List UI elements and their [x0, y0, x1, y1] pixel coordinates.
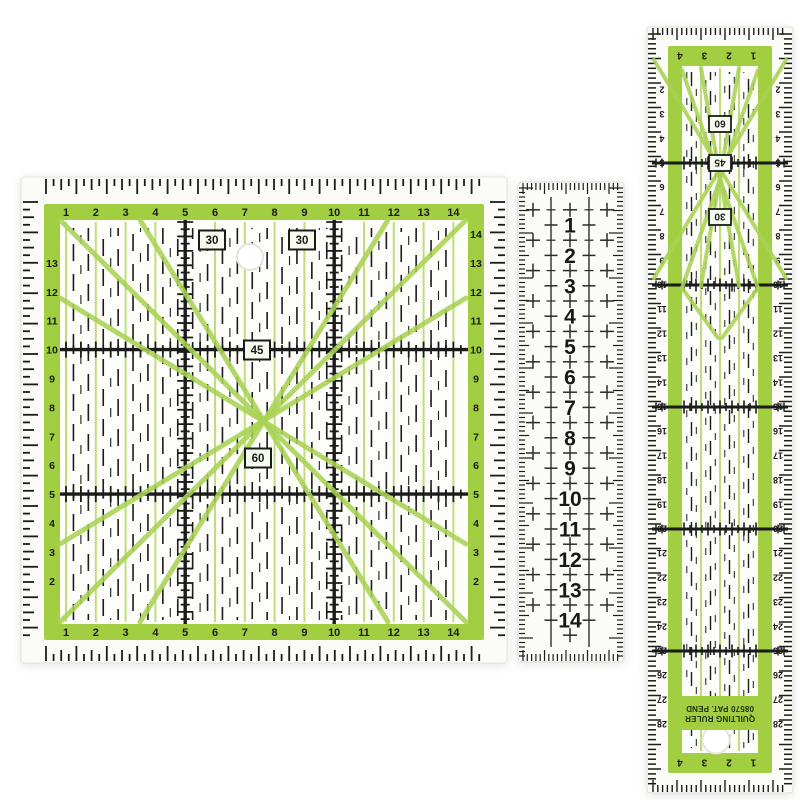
- scale-number: 1: [750, 50, 756, 61]
- scale-number: 10: [470, 345, 482, 357]
- scale-number: 3: [473, 547, 479, 559]
- angle-box-label: 45: [714, 157, 726, 168]
- scale-number: 4: [677, 50, 683, 61]
- scale-number: 13: [46, 258, 58, 270]
- scale-number: 22: [657, 573, 667, 583]
- scale-number: 12: [388, 207, 400, 219]
- scale-number: 2: [659, 85, 664, 95]
- scale-number: 4: [659, 133, 664, 143]
- scale-number: 7: [242, 207, 248, 219]
- scale-number: 4: [775, 133, 780, 143]
- scale-number: 3: [775, 109, 780, 119]
- scale-number: 7: [775, 206, 780, 216]
- scale-number: 1: [63, 627, 69, 639]
- scale-number: 13: [773, 353, 783, 363]
- ruler-label-line2: 08570 PAT. PEND: [686, 703, 754, 713]
- scale-number: 14: [447, 207, 460, 219]
- scale-number: 14: [773, 377, 783, 387]
- scale-number: 9: [473, 374, 479, 386]
- scale-number: 5: [473, 489, 479, 501]
- scale-number: 3: [659, 109, 664, 119]
- scale-number: 2: [775, 85, 780, 95]
- scale-number: 8: [272, 627, 278, 639]
- scale-number: 10: [46, 345, 58, 357]
- scale-number: 5: [49, 489, 55, 501]
- scale-number: 28: [773, 719, 783, 729]
- scale-number: 4: [564, 306, 576, 329]
- scale-number: 13: [558, 579, 581, 602]
- scale-number: 2: [93, 627, 99, 639]
- scale-number: 2: [93, 207, 99, 219]
- scale-number: 6: [49, 460, 55, 472]
- scale-number: 12: [773, 329, 783, 339]
- scale-number: 18: [773, 475, 783, 485]
- scale-number: 2: [564, 245, 576, 268]
- scale-number: 13: [417, 627, 429, 639]
- scale-number: 18: [657, 475, 667, 485]
- scale-number: 1: [63, 207, 69, 219]
- long-quilting-ruler: QUILTING RULER 08570 PAT. PEND 234567891…: [646, 26, 794, 794]
- scale-number: 14: [558, 610, 582, 633]
- scale-number: 7: [659, 206, 664, 216]
- ruler-label-line1: QUILTING RULER: [685, 713, 755, 723]
- scale-number: 12: [470, 287, 482, 299]
- scale-number: 9: [301, 627, 307, 639]
- scale-number: 16: [773, 426, 783, 436]
- scale-number: 6: [212, 207, 218, 219]
- scale-number: 26: [657, 670, 667, 680]
- scale-number: 7: [473, 431, 479, 443]
- scale-number: 9: [301, 207, 307, 219]
- scale-number: 2: [473, 576, 479, 588]
- scale-number: 11: [46, 316, 57, 328]
- scale-number: 3: [701, 50, 707, 61]
- scale-number: 3: [701, 757, 707, 768]
- scale-number: 4: [473, 518, 479, 530]
- narrow-straight-ruler: 1234567891011121314: [517, 181, 625, 663]
- scale-number: 27: [773, 695, 783, 705]
- scale-number: 11: [470, 316, 481, 328]
- scale-number: 2: [49, 576, 55, 588]
- scale-number: 16: [657, 426, 667, 436]
- scale-number: 8: [775, 231, 780, 241]
- scale-number: 9: [564, 458, 576, 481]
- scale-number: 7: [242, 627, 248, 639]
- scale-number: 11: [358, 627, 370, 639]
- scale-number: 11: [657, 304, 667, 314]
- scale-number: 3: [123, 207, 129, 219]
- straight-ruler-graphic: 1234567891011121314: [517, 181, 625, 663]
- angle-box-label: 60: [252, 453, 265, 465]
- scale-number: 19: [657, 499, 667, 509]
- hang-hole: [237, 244, 263, 270]
- scale-number: 14: [657, 377, 667, 387]
- scale-number: 8: [272, 207, 278, 219]
- scale-number: 14: [470, 229, 482, 241]
- scale-number: 1: [750, 757, 756, 768]
- scale-number: 19: [773, 499, 783, 509]
- scale-number: 11: [358, 207, 370, 219]
- scale-number: 26: [773, 670, 783, 680]
- scale-number: 6: [659, 182, 664, 192]
- scale-number: 11: [773, 304, 783, 314]
- scale-number: 17: [657, 451, 667, 461]
- scale-number: 24: [773, 621, 783, 631]
- scale-number: 8: [49, 402, 55, 414]
- scale-number: 7: [49, 431, 55, 443]
- scale-number: 4: [49, 518, 55, 530]
- scale-number: 17: [773, 451, 783, 461]
- scale-number: 5: [182, 207, 188, 219]
- scale-number: 4: [152, 627, 159, 639]
- scale-number: 6: [212, 627, 218, 639]
- square-ruler-graphic: 3030456012345678910111213141234567891011…: [20, 176, 508, 664]
- angle-box-label: 60: [714, 118, 726, 129]
- scale-number: 9: [49, 374, 55, 386]
- scale-number: 8: [659, 231, 664, 241]
- angle-box-label: 30: [714, 211, 726, 222]
- scale-number: 1: [564, 215, 576, 238]
- long-ruler-graphic: 2345678910111213141516171819202122232425…: [646, 26, 794, 794]
- scale-number: 27: [657, 695, 667, 705]
- ruler-brand-label: QUILTING RULER 08570 PAT. PEND: [679, 696, 761, 730]
- scale-number: 21: [657, 548, 667, 558]
- scale-number: 12: [388, 627, 400, 639]
- angle-box-label: 30: [206, 235, 219, 247]
- quilting-rulers-photo: 3030456012345678910111213141234567891011…: [0, 0, 800, 800]
- scale-number: 24: [657, 621, 667, 631]
- scale-number: 6: [775, 182, 780, 192]
- hang-hole: [703, 727, 730, 754]
- scale-number: 5: [564, 336, 576, 359]
- scale-number: 7: [564, 397, 576, 420]
- scale-number: 4: [677, 757, 683, 768]
- scale-number: 23: [657, 597, 667, 607]
- scale-number: 6: [473, 460, 479, 472]
- scale-number: 21: [773, 548, 783, 558]
- scale-number: 14: [447, 627, 460, 639]
- scale-number: 22: [773, 573, 783, 583]
- scale-number: 8: [564, 427, 576, 450]
- scale-number: 8: [473, 402, 479, 414]
- scale-number: 6: [564, 367, 576, 390]
- scale-number: 3: [564, 275, 576, 298]
- scale-number: 3: [123, 627, 129, 639]
- angle-box-label: 30: [296, 235, 309, 247]
- scale-number: 10: [328, 207, 340, 219]
- scale-number: 13: [417, 207, 429, 219]
- angle-box-label: 45: [251, 345, 264, 357]
- scale-number: 10: [558, 488, 581, 511]
- scale-number: 23: [773, 597, 783, 607]
- scale-number: 28: [657, 719, 667, 729]
- scale-number: 12: [558, 549, 581, 572]
- scale-number: 2: [726, 50, 732, 61]
- scale-number: 4: [152, 207, 159, 219]
- scale-number: 12: [657, 329, 667, 339]
- angle-labels: 604530: [709, 116, 731, 225]
- scale-number: 11: [559, 519, 582, 542]
- scale-number: 2: [726, 757, 732, 768]
- scale-number: 12: [46, 287, 58, 299]
- scale-number: 3: [49, 547, 55, 559]
- scale-number: 10: [328, 627, 340, 639]
- scale-number: 5: [182, 627, 188, 639]
- scale-number: 13: [470, 258, 482, 270]
- square-quilting-ruler: 3030456012345678910111213141234567891011…: [20, 176, 508, 664]
- scale-number: 13: [657, 353, 667, 363]
